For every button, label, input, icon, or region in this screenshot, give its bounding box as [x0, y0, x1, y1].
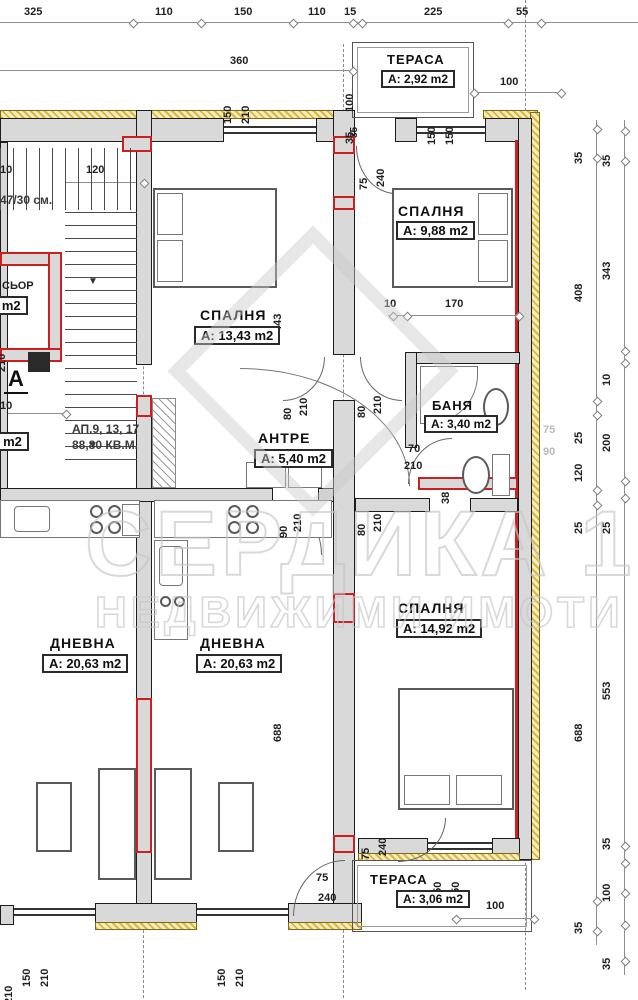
kitchen-sink-right [159, 546, 183, 586]
dim-top-15: 15 [344, 6, 356, 18]
sofa-living-right [154, 768, 192, 880]
stair-arrow-1: ▼ [88, 276, 98, 287]
dim-door-90: 90 [278, 526, 290, 538]
dim-bath-210: 210 [404, 460, 422, 472]
elevator-area-fragment: 4 m2 [0, 296, 28, 315]
area-bedroom-tr: А: 9,88 m2 [396, 221, 475, 240]
wall-top-left [0, 118, 224, 142]
area-bath: А: 3,40 m2 [424, 415, 498, 433]
area-terrace-b: А: 3,06 m2 [396, 890, 470, 908]
pillow [478, 240, 508, 282]
dim-hall-210c: 210 [372, 514, 384, 532]
room-label-terrace-b: ТЕРАСА [370, 872, 428, 887]
kitchen-sink-left [14, 506, 50, 532]
dim-hall-80a: 80 [282, 408, 294, 420]
armchair-living-left [36, 782, 72, 852]
dim-line-100-top [473, 92, 562, 93]
duct-shaft [152, 398, 176, 488]
dim-170: 170 [445, 298, 463, 310]
dim-bath-70: 70 [408, 443, 420, 455]
toilet-bowl [462, 456, 490, 494]
dim-ri-35b: 35 [573, 922, 585, 934]
stove-burner [160, 596, 171, 607]
elevator-wall-right [48, 252, 62, 362]
dim-ro-35b: 35 [601, 838, 613, 850]
armchair-living-right [218, 782, 254, 852]
dim-top-110b: 110 [308, 6, 326, 18]
section-letter: А [4, 366, 28, 394]
stove-burner [228, 505, 241, 518]
stove-burner [228, 521, 241, 534]
dim-tb-75: 75 [316, 872, 328, 884]
dim-top-150: 150 [234, 6, 252, 18]
window-bedroom-b [428, 842, 492, 850]
dim-win-150b: 150 [444, 127, 456, 145]
apartment-total-area: 88,80 КВ.М. [72, 438, 138, 452]
dim-bb-240: 240 [377, 838, 389, 856]
apartment-numbers: АП.9, 13, 17 [72, 422, 139, 436]
dim-door-90-210: 210 [292, 514, 304, 532]
dim-38: 38 [440, 492, 452, 504]
dim-ri-408: 408 [573, 284, 585, 302]
dim-ri-120: 120 [573, 464, 585, 482]
wall-bedroom-b-south-b [492, 838, 520, 854]
kitchen-counter-right [154, 500, 332, 538]
room-label-hall: АНТРЕ [258, 430, 310, 446]
dim-win-tl-210: 210 [240, 106, 252, 124]
window-bedroom-tl [224, 126, 316, 134]
stove-burner [108, 521, 121, 534]
dim-120: 120 [86, 164, 104, 176]
dim-line-360 [0, 70, 352, 71]
dim-tb-240: 240 [318, 892, 336, 904]
dim-ro-100: 100 [601, 884, 613, 902]
room-label-bedroom-b: СПАЛНЯ [398, 600, 464, 616]
dim-top-325: 325 [24, 6, 42, 18]
dim-door-240: 240 [375, 169, 387, 187]
wall-bath-north [405, 352, 520, 364]
dim-ro-25: 25 [601, 522, 613, 534]
pillow [157, 240, 183, 282]
toilet-tank [492, 454, 510, 496]
kitchen-cabinet-left [122, 504, 140, 536]
pillow [478, 193, 508, 235]
room-label-bedroom-tl: СПАЛНЯ [200, 307, 266, 323]
room-label-bedroom-tr: СПАЛНЯ [398, 203, 464, 219]
wall-bedroom-b-north-b [470, 498, 518, 512]
wall-bath-west [405, 352, 417, 448]
insulation-bottom-b [95, 922, 197, 930]
dim-corner-210: 210 [3, 986, 15, 1000]
dim-90-ghost: 90 [543, 446, 555, 458]
dim-ro-200: 200 [601, 434, 613, 452]
wall-right-exterior [518, 118, 532, 860]
dim-75-ghost: 75 [543, 424, 555, 436]
dim-blw-210: 210 [39, 969, 51, 987]
area-living-right: А: 20,63 m2 [196, 654, 282, 673]
dim-hall-210b: 210 [372, 396, 384, 414]
sofa-living-left [98, 768, 136, 880]
wall-central-red-1 [333, 196, 355, 210]
insulation-bottom-c [288, 922, 362, 930]
wall-central-red-3 [333, 835, 355, 853]
stove-burner [246, 505, 259, 518]
dim-hall-80b: 80 [356, 406, 368, 418]
dim-win-tl-150: 150 [222, 106, 234, 124]
wall-tr-a [395, 118, 417, 142]
wall-party-red-1 [136, 395, 152, 417]
dim-door-75: 75 [358, 178, 370, 190]
pillow [157, 193, 183, 235]
dim-brw-210: 210 [234, 969, 246, 987]
dim-corner-150: 150 [0, 986, 1, 1000]
area-terrace-top: А: 2,92 m2 [381, 70, 455, 88]
stove-burner [90, 505, 103, 518]
dim-ro-343: 343 [601, 262, 613, 280]
dim-ri-25a: 25 [573, 432, 585, 444]
stove-burner [108, 505, 121, 518]
pillow [456, 775, 502, 805]
dim-hall-80c: 80 [356, 524, 368, 536]
wall-bottom-a [0, 905, 14, 925]
dim-688: 688 [272, 724, 284, 742]
floor-plan: ▼ ▼ 325 110 150 110 [0, 0, 638, 1000]
dim-ro-35a: 35 [601, 155, 613, 167]
dim-top-225: 225 [424, 6, 442, 18]
area-bedroom-b: А: 14,92 m2 [396, 619, 482, 638]
hall-closet-2 [288, 466, 322, 488]
stove-burner [174, 596, 185, 607]
dim-blw-150: 150 [21, 969, 33, 987]
corridor-area-fragment: 02 m2 [0, 432, 29, 451]
room-label-living-left: ДНЕВНА [50, 635, 116, 651]
dim-10-stairs: 10 [0, 164, 12, 176]
dim-35-b: 35 [349, 127, 360, 138]
elevator-label-fragment: СЬОР [2, 280, 34, 292]
wall-right-red-face [515, 140, 518, 852]
dim-ri-35a: 35 [573, 152, 585, 164]
dim-top-110a: 110 [155, 6, 173, 18]
dim-ro-10: 10 [601, 374, 613, 386]
wall-bedroom-b-north-a [355, 498, 430, 512]
door-arc-bedroom-tr [360, 357, 402, 401]
stove-burner [90, 521, 103, 534]
dim-10-bath: 10 [384, 298, 396, 310]
dim-line-10 [0, 413, 66, 414]
dim-line-right-inner [596, 120, 597, 945]
dim-win-150a: 150 [426, 127, 438, 145]
dim-10-corr: 10 [0, 400, 12, 412]
dim-terrace-100: 100 [344, 94, 356, 112]
room-label-living-right: ДНЕВНА [200, 635, 266, 651]
dim-ro-553: 553 [601, 682, 613, 700]
dim-ro-35c: 35 [601, 958, 613, 970]
dim-bb-75: 75 [360, 848, 372, 860]
wall-party-red-2 [136, 698, 152, 853]
dim-ri-688: 688 [573, 724, 585, 742]
dim-100-top: 100 [500, 76, 518, 88]
room-label-terrace-top: ТЕРАСА [387, 52, 445, 67]
area-bedroom-tl: А: 13,43 m2 [194, 326, 280, 345]
dim-360: 360 [230, 55, 248, 67]
elevator-block [28, 352, 50, 372]
pillow [404, 775, 450, 805]
dim-hall-210a: 210 [298, 398, 310, 416]
wall-central-red-2 [333, 593, 355, 623]
area-hall: А: 5,40 m2 [254, 449, 333, 468]
window-living-right [197, 908, 288, 916]
stove-burner [246, 521, 259, 534]
room-label-bath: БАНЯ [432, 398, 473, 413]
dim-brw-150: 150 [216, 969, 228, 987]
stair-step-note: 47/30 см. [0, 193, 52, 207]
dim-100-bottom: 100 [486, 900, 504, 912]
dim-top-55: 55 [516, 6, 528, 18]
door-arc-living-terrace [293, 860, 345, 916]
area-living-left: А: 20,63 m2 [42, 654, 128, 673]
window-living-left [14, 908, 95, 916]
dim-ri-25b: 25 [573, 522, 585, 534]
